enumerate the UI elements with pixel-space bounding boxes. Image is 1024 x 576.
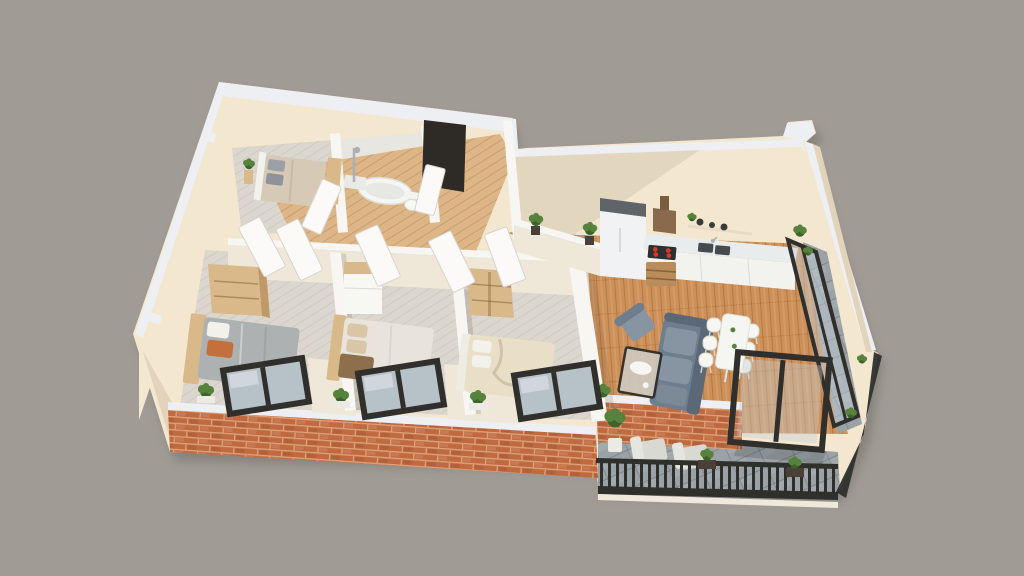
small-bedroom [243, 152, 342, 235]
bedrooms-back-wall-top [228, 238, 588, 263]
bedroom2-floor [336, 258, 470, 416]
lounge-chair-2 [672, 438, 710, 471]
bedroom3-right-wall [568, 258, 608, 422]
sofa-arm-top [664, 312, 709, 329]
lounge-chair-1 [630, 432, 668, 465]
shower-head [354, 147, 360, 153]
bath-partition-2 [421, 125, 440, 223]
divider-wall-2 [450, 258, 476, 415]
bedroom1-floor [178, 250, 350, 418]
wicker-crate [646, 262, 676, 286]
railing-slats [597, 462, 838, 494]
north-wall-top [219, 82, 512, 132]
bed3-pillow-1 [472, 340, 492, 354]
single-bed [254, 152, 327, 208]
bedroom-1 [183, 217, 324, 396]
half-wall-plant-2 [583, 222, 597, 235]
half-wall-plant-1 [529, 213, 543, 226]
divider-wall-2-shade [461, 259, 481, 414]
bedroom-3 [428, 227, 555, 401]
dining-chair-3 [699, 353, 713, 373]
dining-chair-2 [703, 336, 717, 356]
floorplan-stage [0, 0, 1024, 576]
shower-tray [343, 175, 367, 191]
bed1-pillow-orange [206, 339, 234, 358]
entry-side-wall [503, 120, 523, 239]
sill-plant-2 [333, 388, 349, 403]
window-1 [220, 355, 313, 418]
north-wall-step [510, 118, 527, 160]
small-bedroom-plant [243, 158, 255, 169]
half-wall-pot-1 [531, 226, 540, 235]
sill-planter-2 [332, 401, 350, 408]
half-wall-face [514, 225, 600, 276]
side-balcony-tiles [803, 242, 862, 434]
bed3-headboard [456, 333, 472, 392]
toilet [403, 191, 420, 211]
east-wall-face [813, 144, 872, 352]
bed2-frame [326, 314, 347, 381]
side-balcony-plant-1 [845, 407, 857, 418]
fridge-front [600, 211, 646, 280]
balcony-parapet-brick [596, 402, 742, 450]
bathtub-basin [364, 180, 406, 201]
hall-door-2 [484, 227, 526, 288]
sill-planter-3 [469, 403, 487, 410]
sofa-backrest [686, 320, 715, 415]
bed2-pillow-2 [346, 339, 367, 354]
single-bed-headboard [254, 152, 267, 200]
coffee-table [618, 347, 661, 398]
sofa-cushion-2 [657, 355, 693, 385]
floors [178, 132, 862, 492]
kitchen-wall-shade [514, 150, 700, 244]
front-brick-band [168, 410, 598, 478]
double-bed-2 [326, 314, 434, 392]
balcony-tile-floor [598, 436, 840, 492]
bathtub [356, 174, 413, 207]
sill-planter-1 [197, 396, 215, 403]
living-dining [595, 301, 759, 415]
divider-wall-1 [330, 252, 356, 411]
bedroom1-door [238, 217, 285, 278]
railing-plant-1 [700, 448, 714, 460]
front-balcony [596, 224, 882, 508]
living-plant [595, 383, 610, 397]
table-deco-1 [730, 327, 736, 333]
chimney-notch [783, 121, 815, 141]
glass-door-shadow [734, 444, 826, 464]
railing-plant-2 [788, 456, 802, 468]
wall-vine-plant-2 [803, 246, 813, 255]
balcony-parapet-top [596, 394, 742, 410]
railing-top-rail [596, 458, 838, 469]
dining-chair-4 [745, 324, 759, 344]
railing-planter-2 [786, 468, 804, 477]
bed3-pillow-2 [471, 355, 491, 369]
single-bed-duvet [258, 154, 327, 207]
sill-plant-1 [198, 383, 214, 398]
kitchen-shelf-plant [687, 213, 696, 222]
balcony-tall-plant [604, 408, 625, 427]
glazing [730, 240, 858, 464]
wall-vine-plant-1 [793, 224, 807, 236]
apartment-footprint [133, 82, 878, 492]
pot-2 [709, 222, 715, 228]
side-glass-wall [788, 240, 858, 426]
counter-seam-2 [748, 259, 750, 286]
west-wall [135, 82, 509, 420]
bed1-pillow-white [206, 321, 230, 339]
sofa-cushion-1 [662, 326, 698, 356]
divider-wall-1-shade [341, 253, 361, 410]
bedrooms-back-wall-face [228, 245, 588, 296]
bedroom3-floor [456, 266, 592, 420]
dining-set [699, 313, 759, 382]
bed2-pillow-1 [347, 323, 368, 338]
bed2-throw [338, 353, 375, 381]
counter-seam-1 [700, 255, 702, 282]
pot-3 [721, 224, 728, 231]
east-wall-top [804, 141, 876, 352]
railing-bottom-rail [598, 486, 838, 500]
dining-table [715, 313, 751, 372]
living-kitchen-floor [506, 232, 848, 434]
small-bedroom-floor [232, 140, 342, 236]
wall-shelf [688, 226, 752, 234]
kitchen-wall-top [514, 139, 805, 161]
double-bed-1 [183, 313, 301, 396]
bedroom-2 [326, 225, 434, 392]
single-bed-pillow-2 [266, 173, 284, 186]
north-wall [219, 82, 876, 352]
front-sill-strip [168, 402, 596, 435]
railing-planter-1 [698, 460, 716, 469]
single-bed-pillow-1 [267, 159, 285, 172]
bathroom-floor [332, 132, 438, 230]
half-wall-pot-2 [585, 236, 594, 245]
hall-floor [262, 134, 514, 266]
kitchen-wall-face [514, 147, 808, 244]
cooktop [648, 245, 677, 260]
window-pier-1 [308, 358, 356, 416]
front-left-wedge [134, 336, 174, 452]
sill-plant-3 [470, 390, 486, 405]
dining-chair-6 [737, 359, 751, 379]
window-2 [355, 358, 448, 421]
bed1-duvet [197, 317, 300, 390]
sofa-base [649, 318, 712, 413]
wardrobe-1 [208, 264, 270, 318]
counter-front [643, 249, 795, 290]
west-wall-face [139, 92, 509, 420]
interior-walls [228, 120, 616, 422]
range-hood [653, 208, 676, 234]
bath-partition-1 [330, 133, 348, 233]
wardrobe-3 [466, 268, 514, 318]
front-windows [197, 355, 603, 423]
half-wall-top [514, 218, 600, 250]
window-3 [511, 360, 604, 423]
window-pier-2 [444, 364, 518, 424]
side-balcony-plant-2 [857, 354, 867, 363]
armchair [613, 301, 658, 345]
west-wall-cap-1 [202, 130, 216, 143]
dresser-2 [344, 262, 382, 314]
small-bedroom-wardrobe [324, 157, 342, 204]
bathroom-door [414, 164, 445, 215]
bathroom [343, 147, 445, 216]
background [0, 0, 1024, 576]
side-railing [836, 352, 882, 498]
front-wall [134, 336, 742, 478]
kitchen [600, 196, 798, 290]
bed2-duvet [338, 317, 435, 388]
plant-stand [244, 170, 253, 184]
bedroom3-door [428, 231, 475, 293]
sofa [648, 312, 715, 415]
west-wall-cap-2 [148, 312, 162, 325]
hood-chimney [660, 196, 669, 210]
small-bedroom-door [301, 179, 341, 235]
fridge-top [600, 198, 646, 217]
railing-fascia [598, 494, 838, 508]
bed1-frame [183, 313, 207, 384]
counter-top [643, 234, 798, 263]
double-bed-3 [456, 333, 556, 401]
floorplan-render [0, 0, 1024, 576]
entry-door [422, 120, 466, 192]
bed3-duvet [464, 334, 556, 401]
building-drop-shadow [138, 91, 883, 501]
sofa-cushion-3 [655, 384, 688, 407]
dining-chair-1 [707, 318, 721, 338]
bedroom3-right-wall-shade [584, 259, 616, 420]
table-leg [725, 370, 727, 382]
hall-door-1 [276, 219, 323, 281]
balcony-plant-pot [608, 438, 622, 452]
dining-chair-5 [741, 342, 755, 362]
pot-1 [697, 219, 704, 226]
open-glass-door [730, 352, 829, 450]
bedroom2-door [355, 225, 401, 287]
table-deco-2 [731, 343, 737, 349]
kitchen-sink [698, 236, 731, 256]
west-wall-top [135, 82, 227, 338]
